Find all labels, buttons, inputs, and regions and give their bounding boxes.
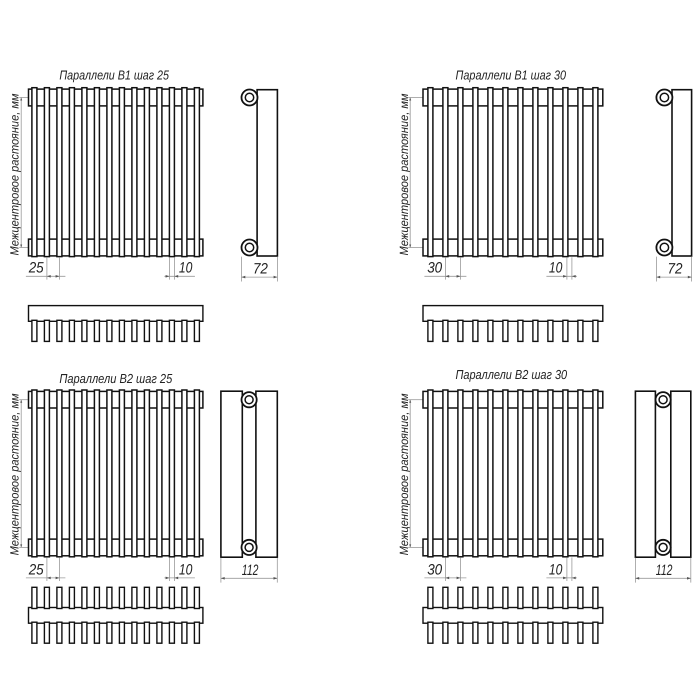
svg-text:10: 10 — [549, 562, 563, 579]
svg-text:Параллели В1 шаг 30: Параллели В1 шаг 30 — [456, 67, 567, 82]
svg-text:Межцентровое растояние, мм: Межцентровое растояние, мм — [7, 94, 21, 256]
svg-text:25: 25 — [28, 562, 44, 579]
svg-text:112: 112 — [242, 562, 259, 579]
svg-text:10: 10 — [179, 260, 193, 277]
svg-text:Межцентровое растояние, мм: Межцентровое растояние, мм — [397, 94, 411, 256]
svg-text:Межцентровое растояние, мм: Межцентровое растояние, мм — [397, 393, 411, 555]
svg-text:112: 112 — [656, 562, 673, 579]
svg-text:10: 10 — [549, 260, 563, 277]
svg-text:Параллели В2 шаг 25: Параллели В2 шаг 25 — [59, 371, 173, 386]
svg-text:25: 25 — [28, 260, 44, 277]
svg-text:72: 72 — [253, 261, 269, 278]
svg-text:30: 30 — [427, 260, 443, 277]
svg-text:10: 10 — [179, 562, 193, 579]
svg-text:30: 30 — [427, 562, 443, 579]
svg-text:Параллели В1 шаг 25: Параллели В1 шаг 25 — [59, 67, 169, 82]
svg-text:72: 72 — [668, 261, 684, 278]
svg-text:Межцентровое растояние, мм: Межцентровое растояние, мм — [7, 393, 21, 555]
svg-text:Параллели В2 шаг 30: Параллели В2 шаг 30 — [455, 367, 567, 382]
